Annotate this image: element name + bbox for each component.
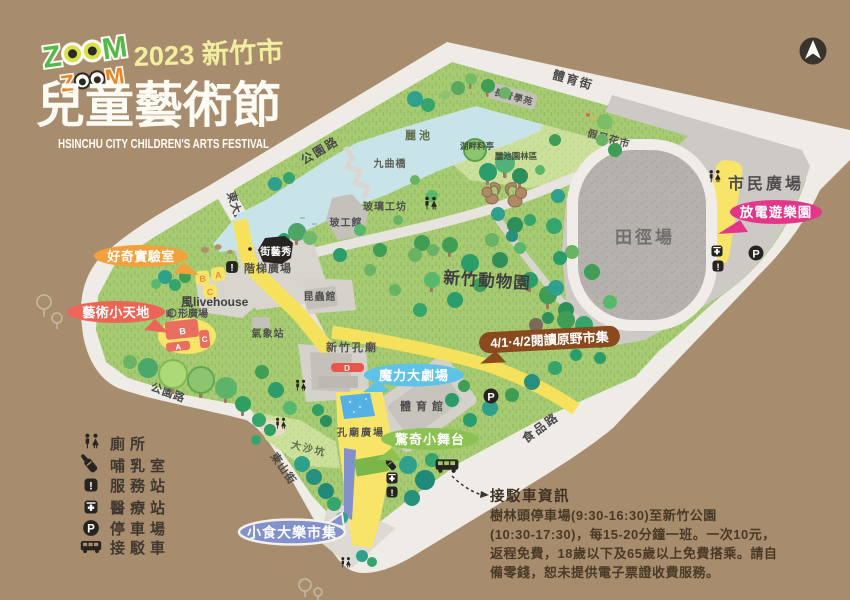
svg-text:放電遊樂園: 放電遊樂園 <box>739 204 813 220</box>
svg-text:階梯廣場: 階梯廣場 <box>244 261 292 275</box>
svg-text:2023 新竹市: 2023 新竹市 <box>133 36 284 72</box>
svg-text:圓: 圓 <box>166 309 173 318</box>
svg-text:醫療站: 醫療站 <box>110 499 170 517</box>
svg-text:田徑場: 田徑場 <box>615 227 675 247</box>
svg-text:(10:30-17:30)，每15-20分鐘一班。一次10元: (10:30-17:30)，每15-20分鐘一班。一次10元， <box>490 527 776 542</box>
svg-text:風livehouse: 風livehouse <box>181 295 249 309</box>
svg-text:麗池: 麗池 <box>405 128 433 142</box>
svg-text:新竹孔廟: 新竹孔廟 <box>326 340 378 354</box>
svg-text:兒童藝術節: 兒童藝術節 <box>36 79 281 133</box>
svg-text:A: A <box>175 342 182 352</box>
svg-text:接駁車資訊: 接駁車資訊 <box>490 487 570 505</box>
svg-text:哺乳室: 哺乳室 <box>110 457 170 475</box>
svg-text:小食大樂市集: 小食大樂市集 <box>247 525 337 541</box>
svg-text:街藝秀: 街藝秀 <box>259 245 292 258</box>
svg-text:好奇實驗室: 好奇實驗室 <box>106 249 175 264</box>
svg-text:湖畔料亭: 湖畔料亭 <box>460 141 495 151</box>
svg-text:體育館: 體育館 <box>400 399 448 413</box>
svg-text:廁所: 廁所 <box>110 435 150 453</box>
svg-text:驚奇小舞台: 驚奇小舞台 <box>394 432 465 447</box>
svg-text:D: D <box>344 364 350 373</box>
svg-text:藝術小天地: 藝術小天地 <box>82 305 150 320</box>
svg-text:備零錢，恕未提供電子票證收費服務。: 備零錢，恕未提供電子票證收費服務。 <box>490 565 720 580</box>
svg-text:孔廟廣場: 孔廟廣場 <box>337 426 385 439</box>
svg-text:市民廣場: 市民廣場 <box>728 174 804 193</box>
svg-text:形廣場: 形廣場 <box>178 307 208 320</box>
svg-text:接駁車: 接駁車 <box>110 539 170 557</box>
svg-text:昆蟲館: 昆蟲館 <box>304 290 337 303</box>
svg-text:服務站: 服務站 <box>110 477 170 495</box>
svg-text:返程免費，18歲以下及65歲以上免費搭乘。請自: 返程免費，18歲以下及65歲以上免費搭乘。請自 <box>490 546 777 561</box>
svg-text:C: C <box>201 335 208 345</box>
svg-text:樹林頭停車場(9:30-16:30)至新竹公園: 樹林頭停車場(9:30-16:30)至新竹公園 <box>490 508 717 523</box>
svg-text:M: M <box>100 30 128 66</box>
svg-text:停車場: 停車場 <box>110 520 170 538</box>
svg-text:九曲橋: 九曲橋 <box>373 157 407 170</box>
svg-text:魔力大劇場: 魔力大劇場 <box>379 368 449 383</box>
svg-text:HSINCHU CITY CHILDREN'S ARTS F: HSINCHU CITY CHILDREN'S ARTS FESTIVAL <box>58 137 269 151</box>
svg-text:氣象站: 氣象站 <box>252 327 285 340</box>
svg-text:麗池園林區: 麗池園林區 <box>495 151 538 161</box>
svg-text:玻璃工坊: 玻璃工坊 <box>363 200 407 213</box>
